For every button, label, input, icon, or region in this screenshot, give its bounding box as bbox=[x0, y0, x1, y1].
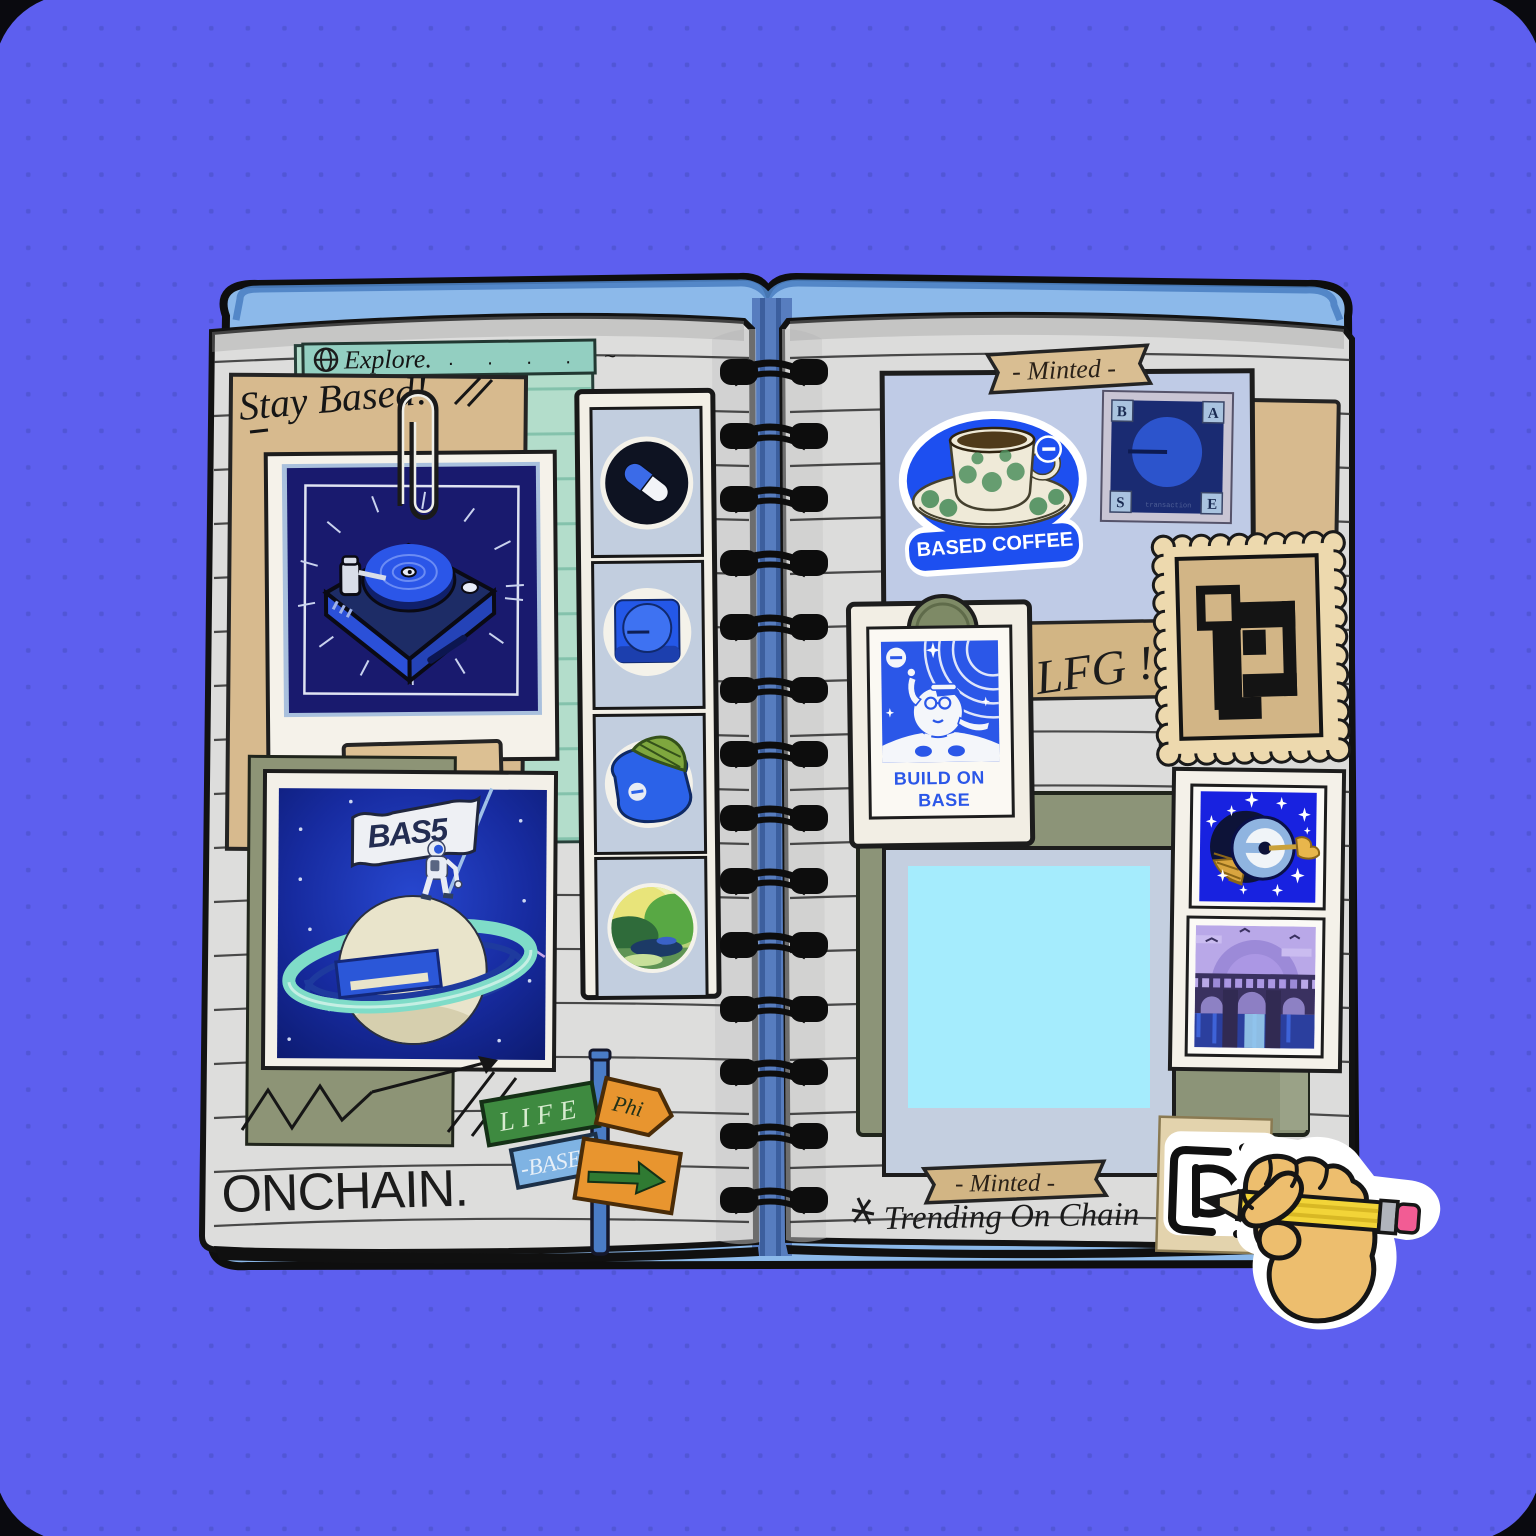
svg-text:- Minted -: - Minted - bbox=[1012, 353, 1117, 386]
svg-text:. . . . ~: . . . . ~ bbox=[448, 345, 630, 370]
svg-text:ONCHAIN.: ONCHAIN. bbox=[221, 1160, 469, 1224]
svg-text:BASE: BASE bbox=[918, 790, 970, 811]
svg-text:E: E bbox=[1207, 497, 1217, 513]
svg-text:Trending On Chain: Trending On Chain bbox=[884, 1197, 1140, 1237]
svg-text:- Minted -: - Minted - bbox=[955, 1170, 1055, 1198]
svg-text:A: A bbox=[1208, 406, 1219, 422]
svg-text:transaction: transaction bbox=[1145, 502, 1191, 511]
svg-text:B: B bbox=[1117, 404, 1127, 420]
svg-text:BUILD ON: BUILD ON bbox=[894, 767, 985, 788]
svg-text:S: S bbox=[1116, 495, 1125, 511]
